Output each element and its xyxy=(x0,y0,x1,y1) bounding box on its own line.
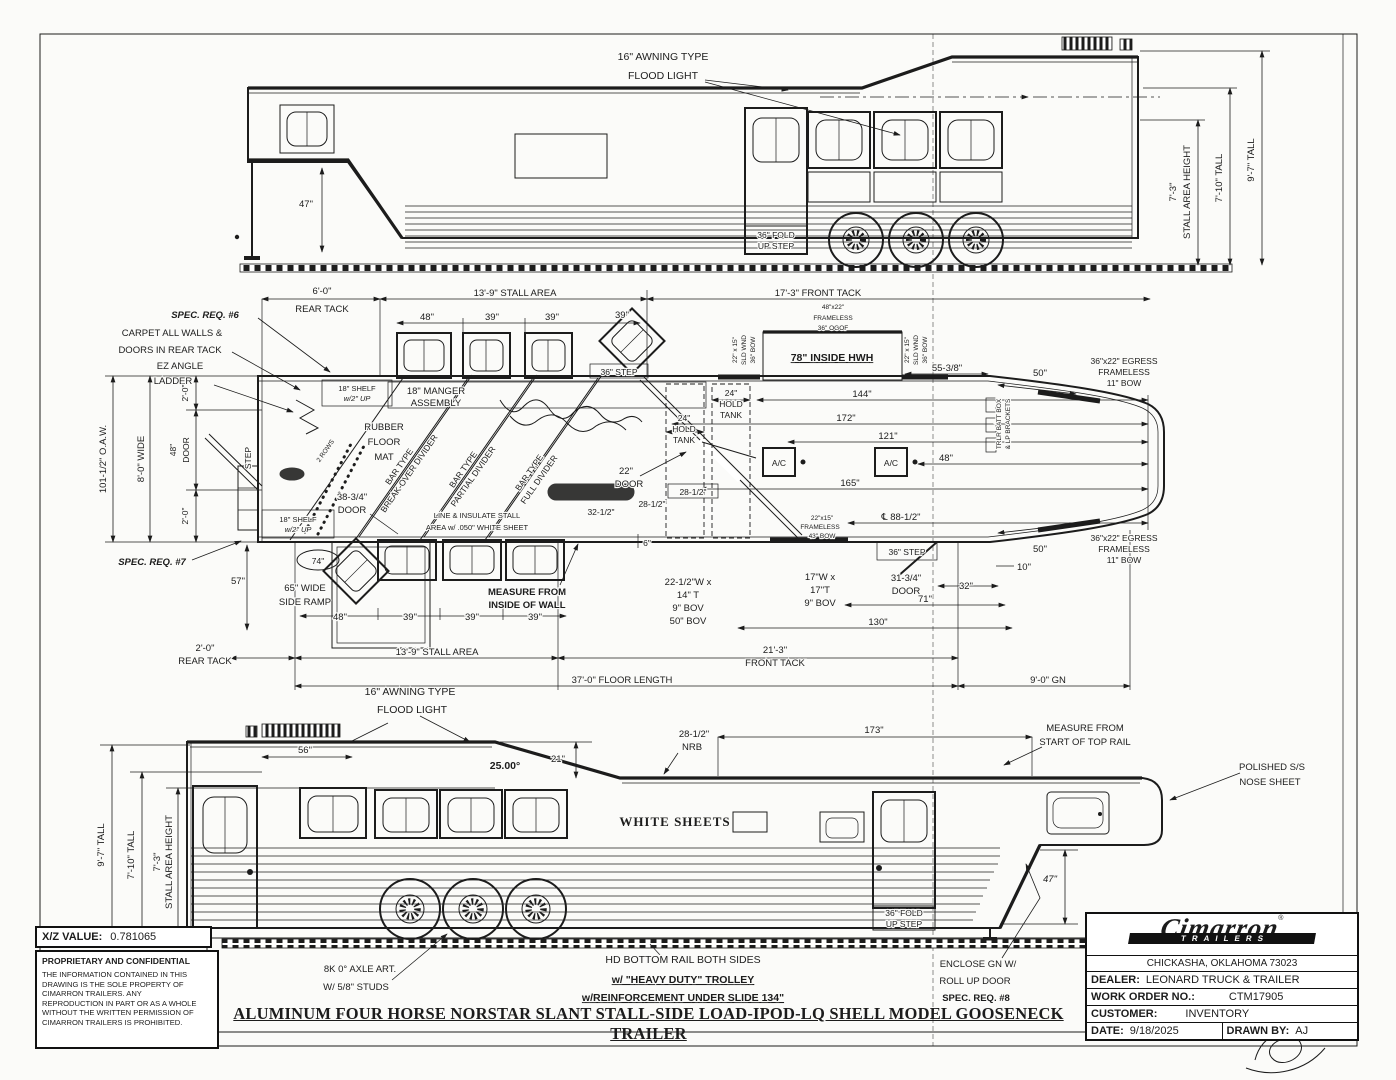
toprail-leader xyxy=(1004,747,1042,765)
fp-d20a: 2'-0" xyxy=(180,385,190,402)
proprietary-line: THE INFORMATION CONTAINED IN THIS xyxy=(42,970,212,980)
fp-sld6: 36" BOW xyxy=(922,336,929,364)
brand-logo: Cimarron® TRAILERS xyxy=(1087,914,1357,955)
fp-bov2b: 17"T xyxy=(810,585,830,596)
fp-w48t: 48" xyxy=(420,312,434,323)
fp-tankA1: 24" xyxy=(725,388,737,398)
plan-windows-bottom xyxy=(378,540,564,580)
tv-h73b: STALL AREA HEIGHT xyxy=(1182,145,1193,239)
fp-w2215b: FRAMELESS xyxy=(800,524,840,531)
ground-track-bottom xyxy=(222,939,1090,948)
bv-awning1: 16" AWNING TYPE xyxy=(365,686,456,698)
measure-leader xyxy=(560,544,578,585)
drawn-by-value: AJ xyxy=(1295,1025,1308,1037)
fp-d20b: 2'-0" xyxy=(180,508,190,525)
awning-leader-2 xyxy=(705,82,900,135)
tv-h710: 7'-10" TALL xyxy=(1214,154,1225,203)
proprietary-line: REPRODUCTION IN PART OR AS A WHOLE xyxy=(42,999,212,1009)
gooseneck-window xyxy=(1047,792,1109,834)
plan-outline xyxy=(258,376,1164,542)
date-value: 9/18/2025 xyxy=(1130,1025,1179,1037)
carpet-leader xyxy=(232,352,300,390)
fp-w48b: 48" xyxy=(333,612,347,623)
floor-plan: SPEC. REQ. #6 CARPET ALL WALLS & DOORS I… xyxy=(98,286,1164,690)
fp-bov1a: 22-1/2"W x xyxy=(665,577,712,588)
fp-d3134b: DOOR xyxy=(892,586,921,597)
fp-manger1: 18" MANGER xyxy=(407,386,465,397)
fp-w39t3: 39" xyxy=(615,310,629,321)
note-hd-rail: HD BOTTOM RAIL BOTH SIDES xyxy=(605,954,760,966)
fp-door22b: DOOR xyxy=(615,479,644,490)
fp-d71: 71" xyxy=(918,594,932,605)
top-view: 16" AWNING TYPE FLOOD LIGHT 47" 36" FOLD… xyxy=(235,37,1270,272)
tv-fold1: 36" FOLD xyxy=(757,230,795,240)
tv-h97: 9'-7" TALL xyxy=(1246,138,1257,181)
fp-bov1b: 14" T xyxy=(677,590,699,601)
work-order-value: CTM17905 xyxy=(1229,991,1283,1003)
fp-shelf2b: w/2" UP xyxy=(285,525,312,534)
xz-value-box: X/Z VALUE: 0.781065 xyxy=(35,926,212,948)
work-order-label: WORK ORDER NO.: xyxy=(1091,991,1195,1003)
fp-step36t: 36" STEP xyxy=(600,367,637,377)
bv-angle: 25.00° xyxy=(490,760,520,772)
fp-bov2a: 17"W x xyxy=(805,572,836,583)
slide-window xyxy=(515,134,607,178)
bv-white-sheets: WHITE SHEETS xyxy=(619,814,730,829)
fp-tankB1: 24" xyxy=(678,413,690,423)
bv-nrb2: NRB xyxy=(682,742,702,753)
fp-batt1: TRLR BATT BOX xyxy=(996,398,1003,449)
spare-panel xyxy=(733,812,767,832)
bv-d56: 56" xyxy=(298,745,312,756)
bv-d47: 47" xyxy=(1043,874,1058,885)
nose-leader xyxy=(1170,773,1240,800)
fp-shelf1a: 18" SHELF xyxy=(338,384,376,393)
rear-door-swing xyxy=(205,434,262,490)
customer-label: CUSTOMER: xyxy=(1091,1008,1157,1020)
drawn-by-label: DRAWN BY: xyxy=(1227,1025,1290,1037)
date-row: DATE: 9/18/2025 DRAWN BY: AJ xyxy=(1087,1022,1357,1039)
fp-rear-bot1: 2'-0" xyxy=(196,643,215,654)
nrb-leader xyxy=(664,753,678,774)
proprietary-line: CIMARRON TRAILERS. ANY xyxy=(42,989,212,999)
fp-w4822: 48"x22" xyxy=(822,304,845,311)
fp-front-bot1: 21'-3" xyxy=(763,645,787,656)
fp-stepv: STEP xyxy=(243,447,253,470)
fp-hwh: 78" INSIDE HWH xyxy=(791,352,874,364)
fp-d50t: 50" xyxy=(1033,368,1047,379)
gooseneck-underside xyxy=(248,160,402,238)
tv-awning2: FLOOD LIGHT xyxy=(628,70,699,82)
fp-front-top: 17'-3" FRONT TACK xyxy=(775,288,862,299)
side-ramp xyxy=(323,538,430,648)
customer-value: INVENTORY xyxy=(1185,1008,1249,1020)
fp-line2: AREA w/ .050" WHITE SHEET xyxy=(426,523,529,532)
proprietary-heading: PROPRIETARY AND CONFIDENTIAL xyxy=(42,956,212,966)
bv-enc3: SPEC. REQ. #8 xyxy=(942,993,1010,1004)
bv-h73b: STALL AREA HEIGHT xyxy=(164,815,175,909)
blueprint-page: { "tv": { "awning1": "16\" AWNING TYPE",… xyxy=(0,0,1396,1080)
fp-d144: 144" xyxy=(852,389,871,400)
door3834-leader xyxy=(370,514,398,534)
fp-ogof: 36" OGOF xyxy=(818,325,849,332)
ez-leader xyxy=(214,385,293,412)
stall-windows-bottom xyxy=(300,788,864,842)
gooseneck-slope xyxy=(1000,845,1040,928)
proprietary-line: DRAWING IS THE SOLE PROPERTY OF xyxy=(42,980,212,990)
title-block: Cimarron® TRAILERS CHICKASHA, OKLAHOMA 7… xyxy=(1085,912,1359,1041)
fp-door48b: DOOR xyxy=(181,437,191,463)
drawing-title-text: ALUMINUM FOUR HORSE NORSTAR SLANT STALL-… xyxy=(233,1004,1063,1043)
bv-nose2: NOSE SHEET xyxy=(1239,777,1300,788)
ground-track xyxy=(240,264,1232,272)
fp-manger2: ASSEMBLY xyxy=(411,398,462,409)
note-reinforcement: w/REINFORCEMENT UNDER SLIDE 134" xyxy=(581,992,784,1004)
fp-d10r: 10" xyxy=(1017,562,1031,573)
fp-egb1: 36"x22" EGRESS xyxy=(1091,533,1158,543)
fp-w39b3: 39" xyxy=(528,612,542,623)
fp-sld3: 36" BOW xyxy=(750,336,757,364)
rear-step xyxy=(238,466,258,530)
drawing-title: ALUMINUM FOUR HORSE NORSTAR SLANT STALL-… xyxy=(207,1004,1090,1044)
fp-frameless-t: FRAMELESS xyxy=(813,315,853,322)
batt-brackets xyxy=(986,398,996,452)
customer-row: CUSTOMER: INVENTORY xyxy=(1087,1005,1357,1022)
bv-nose1: POLISHED S/S xyxy=(1239,762,1305,773)
fp-rows2: 2 ROWS xyxy=(316,438,337,464)
fp-w39t1: 39" xyxy=(485,312,499,323)
fp-egt2: FRAMELESS xyxy=(1098,367,1150,377)
fp-ac1: A/C xyxy=(772,458,786,468)
proprietary-line: CIMARRON TRAILERS IS PROHIBITED. xyxy=(42,1018,212,1028)
brand-sub: TRAILERS xyxy=(1128,933,1316,944)
fp-egb3: 11" BOW xyxy=(1107,555,1142,565)
fp-d32: 32" xyxy=(959,581,973,592)
fp-stall-bot: 13'-9" STALL AREA xyxy=(396,647,479,658)
bv-axle2: W/ 5/8" STUDS xyxy=(323,982,389,993)
date-label: DATE: xyxy=(1091,1025,1124,1037)
awning-leader-bottom xyxy=(350,716,470,742)
fp-rub1: RUBBER xyxy=(364,422,404,433)
fp-gn: 9'-0" GN xyxy=(1030,675,1066,686)
tv-awning1: 16" AWNING TYPE xyxy=(618,51,709,63)
door22-leader xyxy=(640,452,686,476)
fp-front-bot2: FRONT TACK xyxy=(745,658,805,669)
fp-batt2: & LP BRACKETS xyxy=(1005,398,1012,449)
fp-ez1: EZ ANGLE xyxy=(157,361,203,372)
fp-d57: 57" xyxy=(231,576,245,587)
fp-ramp1: 65" WIDE xyxy=(284,583,325,594)
fp-door48a: 48" xyxy=(168,444,178,456)
fp-spec6: SPEC. REQ. #6 xyxy=(171,310,239,321)
fp-meas1: MEASURE FROM xyxy=(488,587,566,598)
fp-tankB2: HOLD xyxy=(672,424,696,434)
fp-d3834b: DOOR xyxy=(338,505,367,516)
fp-d48x: 48" xyxy=(939,453,953,464)
fp-rear-top1: 6'-0" xyxy=(313,286,332,297)
dealer-value: LEONARD TRUCK & TRAILER xyxy=(1146,974,1300,986)
fp-tankA2: HOLD xyxy=(719,399,743,409)
proprietary-line: WITHOUT THE WRITTEN PERMISSION OF xyxy=(42,1008,212,1018)
fp-meas2: INSIDE OF WALL xyxy=(488,600,565,611)
fp-step36b: 36" STEP xyxy=(888,547,925,557)
feed-doors xyxy=(808,172,1002,202)
fp-door22a: 22" xyxy=(619,466,633,477)
fp-rub3: MAT xyxy=(374,452,394,463)
fp-d74: 74" xyxy=(312,556,324,566)
dealer-label: DEALER: xyxy=(1091,974,1140,986)
tv-d47: 47" xyxy=(299,199,313,210)
bv-meas2: START OF TOP RAIL xyxy=(1039,737,1130,748)
fp-sld1: 22" x 15" xyxy=(732,336,739,363)
tv-h73a: 7'-3" xyxy=(1168,183,1179,202)
fp-w2215c: 43" BOW xyxy=(809,533,837,540)
fp-oaw: 101-1/2" O.A.W. xyxy=(98,425,109,493)
fp-w39b2: 39" xyxy=(465,612,479,623)
bv-h97: 9'-7" TALL xyxy=(96,823,107,866)
fp-d165: 165" xyxy=(840,478,859,489)
sheet-border xyxy=(40,34,1357,1046)
border-frame xyxy=(40,34,1357,1046)
fp-egt3: 11" BOW xyxy=(1107,378,1142,388)
fp-d50b: 50" xyxy=(1033,544,1047,555)
bv-h710: 7'-10" TALL xyxy=(126,831,137,880)
bv-enc1: ENCLOSE GN W/ xyxy=(940,959,1017,970)
xz-value: 0.781065 xyxy=(110,931,156,943)
fp-rear-bot2: REAR TACK xyxy=(178,656,232,667)
fp-carpet1: CARPET ALL WALLS & xyxy=(122,328,223,339)
lq-window xyxy=(280,105,334,153)
bv-axle1: 8K 0° AXLE ART. xyxy=(324,964,396,975)
axle-wheels xyxy=(829,213,1003,267)
fp-ramp2: SIDE RAMP xyxy=(279,597,331,608)
bv-fold2: UP STEP xyxy=(886,919,923,929)
fp-wide8: 8'-0" WIDE xyxy=(136,436,147,482)
fp-bov1d: 50" BOV xyxy=(670,616,707,627)
fp-sld2: SLD WND xyxy=(741,335,748,365)
fp-carpet2: DOORS IN REAR TACK xyxy=(118,345,222,356)
fp-rub2: FLOOR xyxy=(368,437,401,448)
bv-d173: 173" xyxy=(864,725,883,736)
fp-d5538: 55-3/8" xyxy=(932,363,962,374)
bv-fold1: 36" FOLD xyxy=(885,908,923,918)
fp-w2215a: 22"x15" xyxy=(811,515,834,522)
trailer-outline-bottom xyxy=(187,742,1162,928)
fp-floorlen: 37'-0" FLOOR LENGTH xyxy=(572,675,673,686)
proprietary-box: PROPRIETARY AND CONFIDENTIAL THE INFORMA… xyxy=(35,950,219,1049)
fp-shelf2a: 18" SHELF xyxy=(279,515,317,524)
stall-windows xyxy=(808,112,1002,168)
bv-d21: 21" xyxy=(551,754,565,765)
xz-label: X/Z VALUE: xyxy=(42,931,102,943)
bv-meas1: MEASURE FROM xyxy=(1046,723,1124,734)
bv-awning2: FLOOD LIGHT xyxy=(377,704,448,716)
fp-w39b1: 39" xyxy=(403,612,417,623)
fp-d3212: 32-1/2" xyxy=(587,507,614,517)
divider2-label: BAR TYPE PARTIAL DIVIDER xyxy=(439,438,498,509)
fp-tankA3: TANK xyxy=(720,410,742,420)
fp-egt1: 36"x22" EGRESS xyxy=(1091,356,1158,366)
fp-d130: 130" xyxy=(868,617,887,628)
fp-line1: LINE & INSULATE STALL xyxy=(434,511,520,520)
fp-sld5: SLD WND xyxy=(913,335,920,365)
fp-bov2c: 9" BOV xyxy=(804,598,836,609)
rear-door-bottom xyxy=(193,786,257,928)
fp-spec7: SPEC. REQ. #7 xyxy=(118,557,186,568)
front-jack xyxy=(235,162,260,260)
fp-shelf1b: w/2" UP xyxy=(344,394,371,403)
roof-vents-bottom xyxy=(246,724,340,737)
work-order-row: WORK ORDER NO.: CTM17905 xyxy=(1087,988,1357,1005)
brand-city: CHICKASHA, OKLAHOMA 73023 xyxy=(1087,955,1357,971)
roof-vents xyxy=(1062,37,1132,50)
fp-ac2: A/C xyxy=(884,458,898,468)
fp-egb2: FRAMELESS xyxy=(1098,544,1150,554)
fp-tankB3: TANK xyxy=(673,435,695,445)
fp-w39t2: 39" xyxy=(545,312,559,323)
bv-enc2: ROLL UP DOOR xyxy=(939,976,1010,987)
fp-rear-top2: REAR TACK xyxy=(295,304,349,315)
note-trolley: w/ "HEAVY DUTY" TROLLEY xyxy=(611,974,755,986)
dealer-row: DEALER: LEONARD TRUCK & TRAILER xyxy=(1087,971,1357,988)
fp-d3834a: 38-3/4" xyxy=(337,492,367,503)
gn-jack xyxy=(983,928,997,941)
fp-stall-top: 13'-9" STALL AREA xyxy=(474,288,557,299)
fp-sld4: 22" x 15" xyxy=(904,336,911,363)
fp-d2812a: 28-1/2" xyxy=(679,487,706,497)
spec7-leader xyxy=(192,541,241,560)
side-slats-bottom xyxy=(191,848,1000,920)
spec6-leader xyxy=(258,318,330,372)
fp-bov1c: 9" BOV xyxy=(672,603,704,614)
bv-h73a: 7'-3" xyxy=(152,853,163,872)
fp-d172: 172" xyxy=(836,413,855,424)
fp-d3134a: 31-3/4" xyxy=(891,573,921,584)
tv-fold2: UP STEP xyxy=(758,241,795,251)
fp-d2812b: 28-1/2" xyxy=(638,499,665,509)
bv-nrb1: 28-1/2" xyxy=(679,729,709,740)
fp-d6: 6" xyxy=(643,538,651,548)
fp-d121: 121" xyxy=(878,431,897,442)
fp-cl: ℄ 88-1/2" xyxy=(880,512,920,523)
